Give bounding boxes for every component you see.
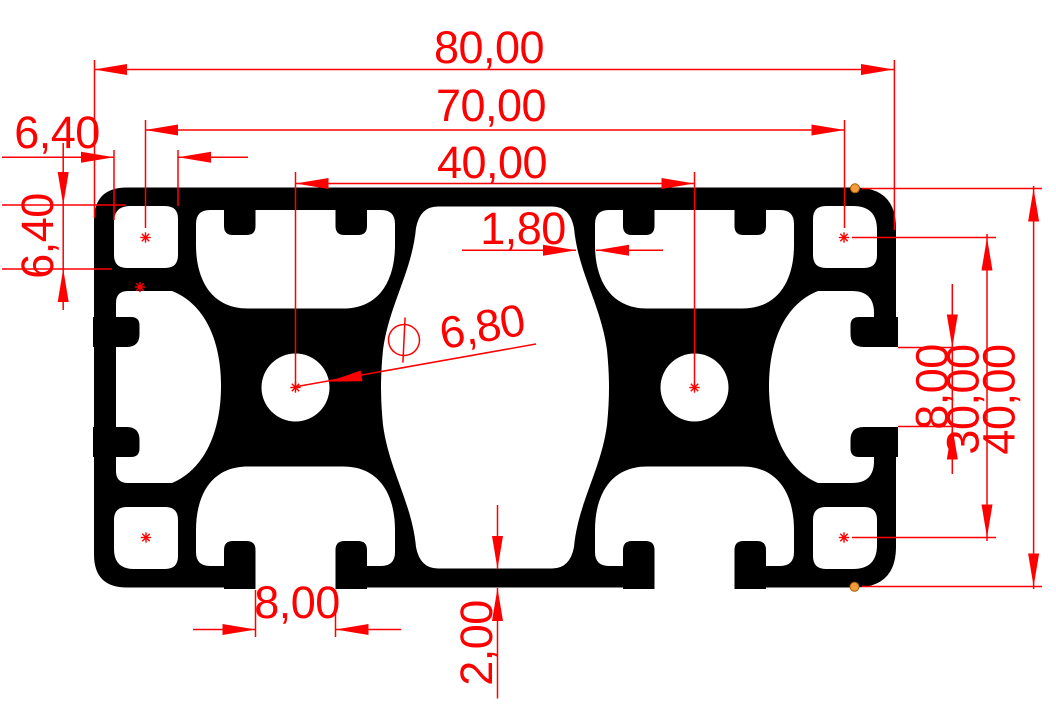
svg-text:40,00: 40,00 xyxy=(437,137,547,188)
svg-text:6,40: 6,40 xyxy=(12,193,63,279)
svg-text:40,00: 40,00 xyxy=(974,344,1025,454)
svg-text:80,00: 80,00 xyxy=(434,22,544,73)
svg-text:6,40: 6,40 xyxy=(14,107,100,158)
svg-text:1,80: 1,80 xyxy=(480,203,566,254)
svg-text:8,00: 8,00 xyxy=(254,577,340,628)
svg-text:70,00: 70,00 xyxy=(436,80,546,131)
